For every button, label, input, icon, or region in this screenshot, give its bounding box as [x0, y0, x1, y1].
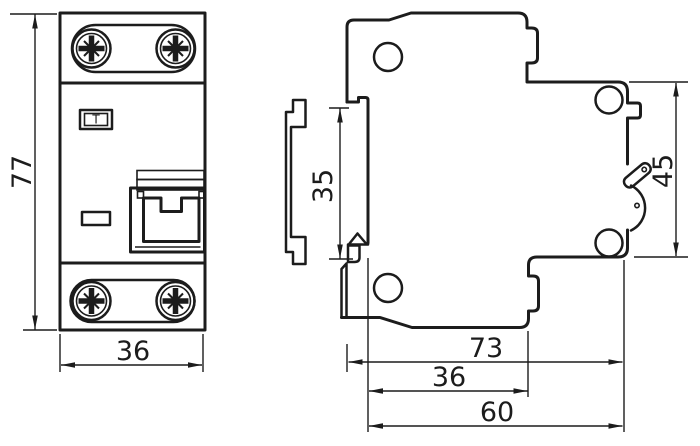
front-hole-bottom: [596, 230, 623, 257]
dim-depth-to-step: 36: [369, 362, 528, 394]
rail-claw-top: [347, 98, 368, 244]
dim-front-height: 77: [7, 14, 57, 330]
screw-icon: [73, 282, 111, 320]
dim-label-77: 77: [7, 155, 38, 189]
technical-drawing-canvas: T: [0, 0, 700, 446]
toggle-top-strip: [137, 171, 204, 180]
housing-hole-top: [374, 43, 402, 71]
technical-drawing: T: [0, 0, 700, 446]
toggle-rocker[interactable]: [144, 198, 200, 242]
front-hole-top: [596, 87, 623, 114]
bottom-terminal: [71, 280, 195, 322]
test-button-label: T: [91, 113, 100, 127]
dim-front-width: 36: [60, 334, 203, 372]
dim-rail-height: 35: [308, 108, 353, 259]
dim-label-36-side: 36: [432, 362, 466, 393]
din-rail-profile: [286, 100, 306, 264]
housing-hole-bottom: [374, 274, 402, 302]
front-view: T: [60, 13, 205, 330]
dim-front-face-height: 45: [629, 82, 688, 257]
indicator-window: [82, 212, 110, 225]
side-body-upper-outline: [347, 13, 641, 164]
screw-icon: [157, 30, 195, 68]
rail-clip-bottom: [342, 234, 369, 318]
dim-label-35: 35: [308, 169, 339, 203]
dim-body-depth: 60: [369, 397, 623, 429]
dim-label-36-front: 36: [116, 336, 150, 367]
test-button[interactable]: T: [80, 110, 112, 129]
dim-label-60: 60: [480, 397, 514, 428]
dim-label-73: 73: [469, 333, 503, 364]
dim-label-45: 45: [648, 154, 679, 188]
screw-icon: [157, 282, 195, 320]
top-terminal: [72, 25, 195, 72]
toggle-switch[interactable]: [131, 171, 205, 253]
side-view: [286, 13, 653, 328]
side-body-lower-outline: [342, 230, 628, 328]
screw-icon: [73, 30, 111, 68]
lever-pivot-dot: [635, 203, 639, 207]
